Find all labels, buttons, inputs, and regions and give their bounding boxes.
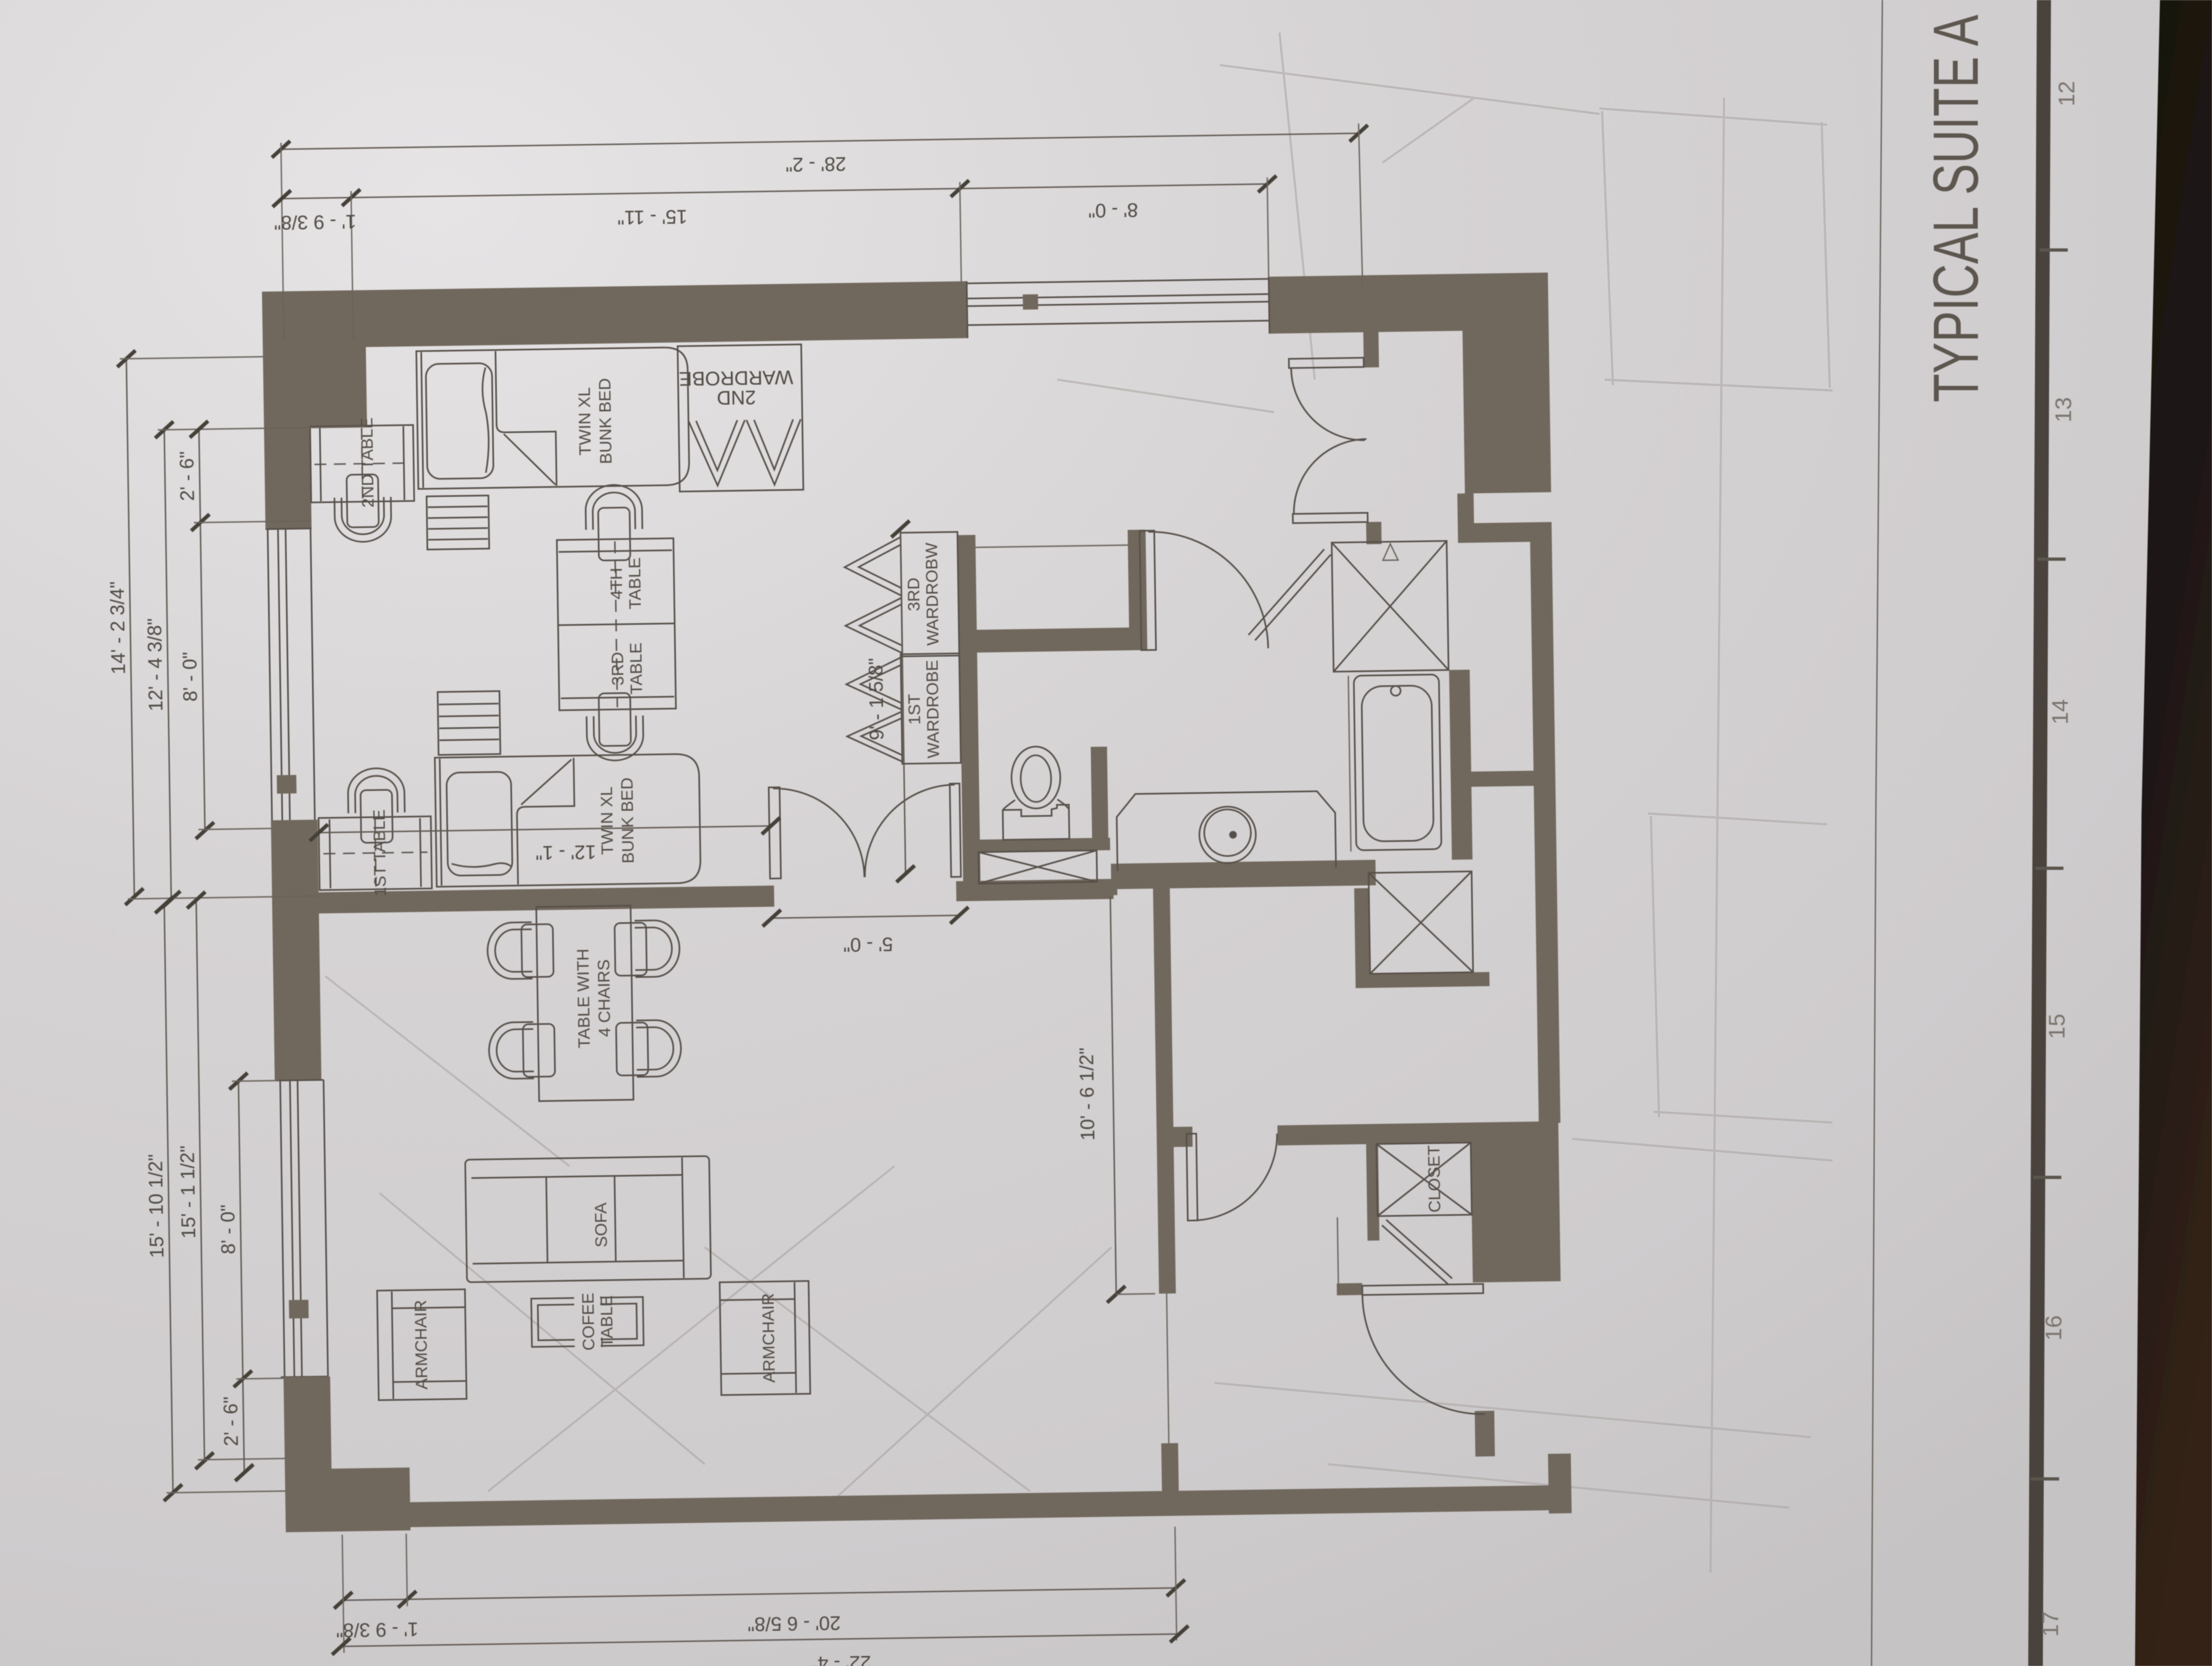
svg-text:15: 15: [2044, 1014, 2069, 1039]
svg-text:CLOSET: CLOSET: [1424, 1145, 1444, 1213]
svg-text:22' - 4": 22' - 4": [811, 1651, 871, 1666]
svg-text:14' - 2 3/4": 14' - 2 3/4": [106, 581, 130, 675]
svg-text:2ND TABLE: 2ND TABLE: [357, 418, 377, 508]
svg-text:12' - 4 3/8": 12' - 4 3/8": [143, 618, 167, 712]
svg-text:16: 16: [2041, 1315, 2066, 1341]
svg-text:12' - 1": 12' - 1": [535, 841, 596, 864]
svg-text:1ST TABLE: 1ST TABLE: [369, 809, 389, 896]
svg-text:13: 13: [2050, 397, 2076, 422]
svg-text:SOFA: SOFA: [591, 1202, 610, 1248]
svg-text:15' - 10 1/2": 15' - 10 1/2": [144, 1154, 168, 1258]
svg-text:28' - 2": 28' - 2": [786, 153, 846, 176]
svg-text:15' - 1 1/2": 15' - 1 1/2": [176, 1145, 200, 1239]
svg-text:1' - 9 3/8": 1' - 9 3/8": [274, 210, 356, 234]
svg-text:ARMCHAIR: ARMCHAIR: [411, 1300, 431, 1390]
svg-text:9' - 1 5/8": 9' - 1 5/8": [864, 658, 888, 740]
svg-text:15' - 11": 15' - 11": [617, 206, 687, 229]
svg-text:20' - 6 5/8": 20' - 6 5/8": [748, 1612, 841, 1636]
svg-text:COFEETABLE: COFEETABLE: [578, 1292, 617, 1351]
svg-text:8' - 0": 8' - 0": [216, 1204, 239, 1254]
svg-text:ARMCHAIR: ARMCHAIR: [758, 1293, 779, 1383]
svg-text:TYPICAL SUITE A: TYPICAL SUITE A: [1920, 15, 1992, 402]
svg-text:2' - 6": 2' - 6": [219, 1396, 242, 1446]
svg-text:14: 14: [2047, 699, 2073, 725]
svg-text:8' - 0": 8' - 0": [178, 652, 201, 702]
svg-text:2' - 6": 2' - 6": [176, 451, 198, 501]
svg-text:8' - 0": 8' - 0": [1088, 199, 1138, 222]
svg-text:5' - 0": 5' - 0": [843, 933, 893, 956]
svg-text:12: 12: [2054, 81, 2079, 106]
svg-text:10' - 6 1/2": 10' - 6 1/2": [1075, 1047, 1099, 1140]
svg-text:17: 17: [2037, 1611, 2063, 1637]
